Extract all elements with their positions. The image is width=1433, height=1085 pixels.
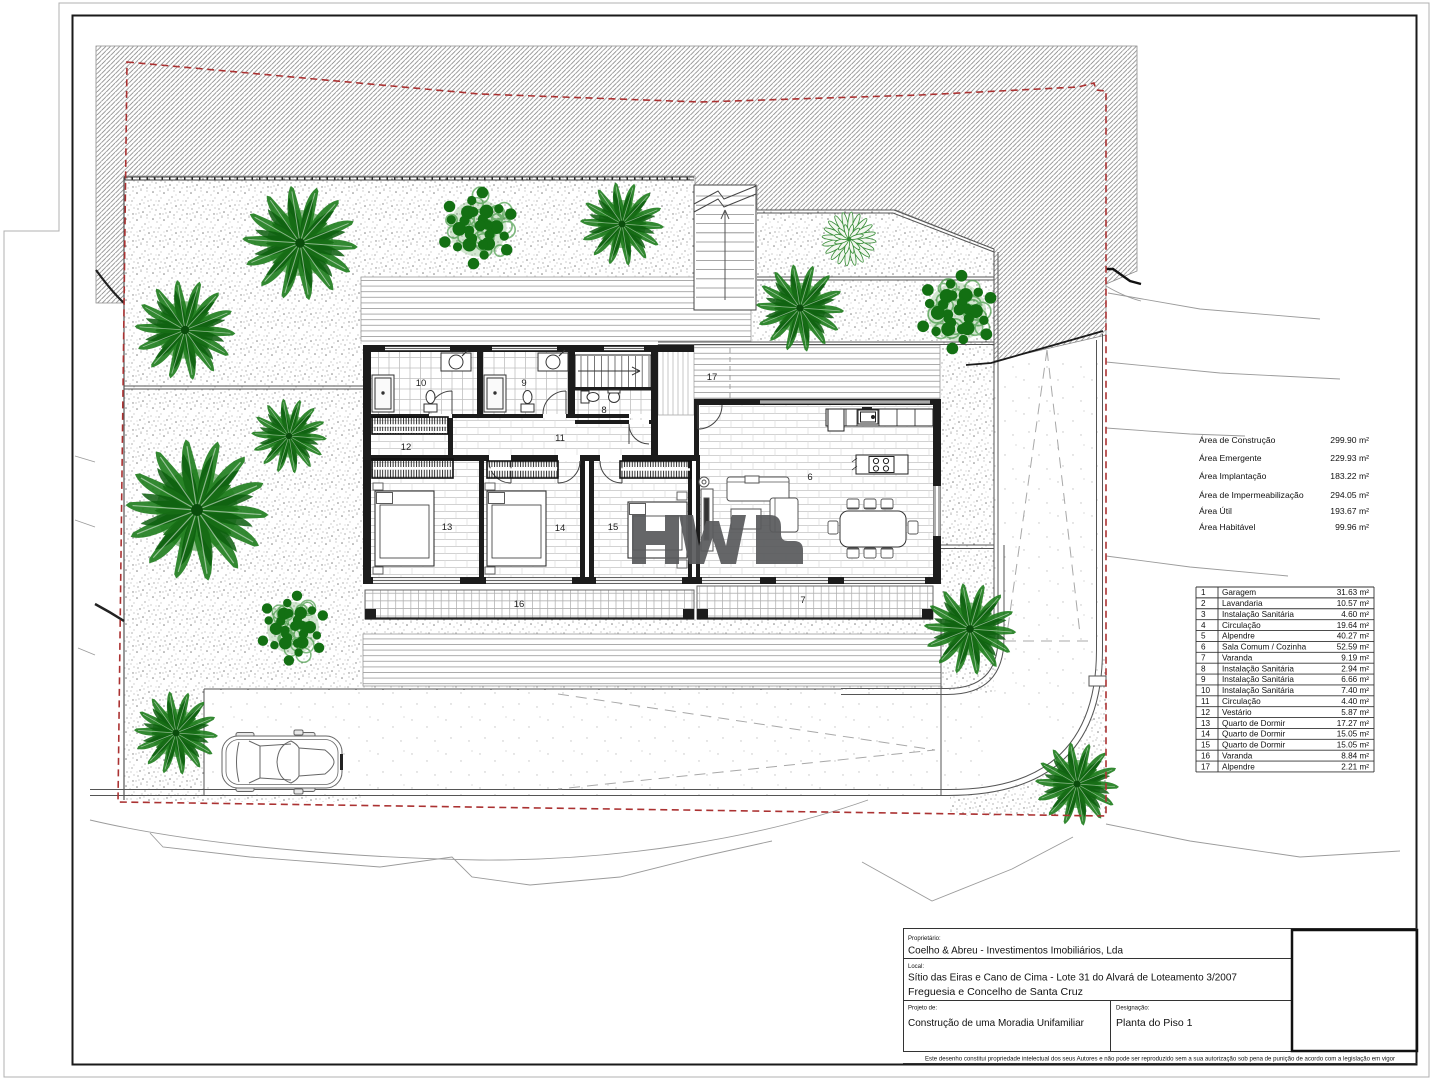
svg-text:Varanda: Varanda bbox=[1222, 653, 1253, 662]
svg-text:Freguesia e Concelho de Santa: Freguesia e Concelho de Santa Cruz bbox=[908, 986, 1083, 998]
svg-text:Instalação Sanitária: Instalação Sanitária bbox=[1222, 675, 1294, 684]
svg-text:31.63 m²: 31.63 m² bbox=[1337, 588, 1370, 597]
svg-text:17: 17 bbox=[1201, 762, 1211, 771]
svg-text:13: 13 bbox=[442, 522, 453, 533]
svg-text:6: 6 bbox=[1201, 643, 1206, 652]
svg-text:15.05 m²: 15.05 m² bbox=[1337, 730, 1370, 739]
svg-text:9.19 m²: 9.19 m² bbox=[1341, 653, 1369, 662]
svg-text:Quarto de Dormir: Quarto de Dormir bbox=[1222, 741, 1286, 750]
svg-text:7: 7 bbox=[800, 595, 805, 606]
svg-text:Instalação Sanitária: Instalação Sanitária bbox=[1222, 664, 1294, 673]
svg-text:Lavandaria: Lavandaria bbox=[1222, 599, 1263, 608]
svg-text:2: 2 bbox=[1201, 599, 1206, 608]
svg-text:4: 4 bbox=[1201, 621, 1206, 630]
svg-text:294.05 m²: 294.05 m² bbox=[1330, 490, 1369, 500]
svg-text:99.96 m²: 99.96 m² bbox=[1335, 522, 1369, 532]
svg-text:Sala Comum / Cozinha: Sala Comum / Cozinha bbox=[1222, 643, 1307, 652]
svg-text:Quarto de Dormir: Quarto de Dormir bbox=[1222, 730, 1286, 739]
svg-text:40.27 m²: 40.27 m² bbox=[1337, 632, 1370, 641]
svg-text:Planta do Piso 1: Planta do Piso 1 bbox=[1116, 1017, 1193, 1029]
svg-text:Circulação: Circulação bbox=[1222, 697, 1261, 706]
svg-text:Local:: Local: bbox=[908, 964, 924, 970]
svg-text:14: 14 bbox=[555, 523, 566, 534]
svg-text:3: 3 bbox=[1201, 610, 1206, 619]
svg-text:Varanda: Varanda bbox=[1222, 751, 1253, 760]
svg-text:Área de Impermeabilização: Área de Impermeabilização bbox=[1199, 490, 1304, 500]
svg-text:Quarto de Dormir: Quarto de Dormir bbox=[1222, 719, 1286, 728]
svg-text:8: 8 bbox=[601, 405, 606, 416]
svg-text:Vestário: Vestário bbox=[1222, 708, 1252, 717]
svg-text:10.57 m²: 10.57 m² bbox=[1337, 599, 1370, 608]
svg-text:17: 17 bbox=[707, 372, 718, 383]
svg-text:Área Implantação: Área Implantação bbox=[1199, 471, 1267, 481]
svg-text:15: 15 bbox=[1201, 741, 1211, 750]
svg-text:9: 9 bbox=[1201, 675, 1206, 684]
svg-text:Circulação: Circulação bbox=[1222, 621, 1261, 630]
svg-text:Coelho & Abreu - Investimentos: Coelho & Abreu - Investimentos Imobiliár… bbox=[908, 945, 1123, 957]
svg-text:Área de Construção: Área de Construção bbox=[1199, 435, 1276, 445]
svg-text:Proprietário:: Proprietário: bbox=[908, 936, 941, 942]
svg-text:19.64 m²: 19.64 m² bbox=[1337, 621, 1370, 630]
svg-text:17.27 m²: 17.27 m² bbox=[1337, 719, 1370, 728]
svg-text:5.87 m²: 5.87 m² bbox=[1341, 708, 1369, 717]
svg-text:10: 10 bbox=[1201, 686, 1211, 695]
svg-text:299.90 m²: 299.90 m² bbox=[1330, 435, 1369, 445]
svg-text:5: 5 bbox=[1201, 632, 1206, 641]
svg-text:16: 16 bbox=[514, 599, 525, 610]
svg-text:Área Habitável: Área Habitável bbox=[1199, 522, 1255, 532]
svg-text:1: 1 bbox=[1201, 588, 1206, 597]
svg-text:Alpendre: Alpendre bbox=[1222, 762, 1255, 771]
svg-text:10: 10 bbox=[416, 378, 427, 389]
svg-text:6.66 m²: 6.66 m² bbox=[1341, 675, 1369, 684]
svg-text:6: 6 bbox=[807, 472, 812, 483]
svg-text:7.40 m²: 7.40 m² bbox=[1341, 686, 1369, 695]
svg-text:193.67 m²: 193.67 m² bbox=[1330, 506, 1369, 516]
svg-text:8: 8 bbox=[1201, 664, 1206, 673]
svg-text:Área Útil: Área Útil bbox=[1199, 506, 1232, 516]
svg-text:8.84 m²: 8.84 m² bbox=[1341, 751, 1369, 760]
svg-text:Alpendre: Alpendre bbox=[1222, 632, 1255, 641]
svg-text:229.93 m²: 229.93 m² bbox=[1330, 453, 1369, 463]
svg-text:16: 16 bbox=[1201, 751, 1211, 760]
svg-text:Projeto de:: Projeto de: bbox=[908, 1006, 937, 1012]
svg-text:183.22 m²: 183.22 m² bbox=[1330, 471, 1369, 481]
svg-text:Construção de uma Moradia Unif: Construção de uma Moradia Unifamiliar bbox=[908, 1017, 1084, 1029]
svg-text:Área Emergente: Área Emergente bbox=[1199, 453, 1262, 463]
svg-text:Designação:: Designação: bbox=[1116, 1006, 1150, 1012]
svg-text:Este desenho constitui proprie: Este desenho constitui propriedade intel… bbox=[925, 1056, 1395, 1063]
svg-text:15.05 m²: 15.05 m² bbox=[1337, 741, 1370, 750]
svg-text:11: 11 bbox=[555, 433, 565, 444]
svg-text:4.60 m²: 4.60 m² bbox=[1341, 610, 1369, 619]
svg-text:4.40 m²: 4.40 m² bbox=[1341, 697, 1369, 706]
svg-text:13: 13 bbox=[1201, 719, 1211, 728]
svg-text:2.94 m²: 2.94 m² bbox=[1341, 664, 1369, 673]
svg-text:12: 12 bbox=[401, 442, 412, 453]
svg-text:52.59 m²: 52.59 m² bbox=[1337, 643, 1370, 652]
svg-text:Instalação Sanitária: Instalação Sanitária bbox=[1222, 610, 1294, 619]
svg-text:Garagem: Garagem bbox=[1222, 588, 1256, 597]
svg-text:12: 12 bbox=[1201, 708, 1211, 717]
svg-text:9: 9 bbox=[521, 378, 526, 389]
svg-text:7: 7 bbox=[1201, 653, 1206, 662]
svg-text:2.21 m²: 2.21 m² bbox=[1341, 762, 1369, 771]
svg-text:11: 11 bbox=[1201, 697, 1210, 706]
svg-text:Sítio das Eiras e Cano de Cima: Sítio das Eiras e Cano de Cima - Lote 31… bbox=[908, 972, 1237, 984]
svg-text:15: 15 bbox=[608, 522, 619, 533]
svg-text:14: 14 bbox=[1201, 730, 1211, 739]
svg-text:Instalação Sanitária: Instalação Sanitária bbox=[1222, 686, 1294, 695]
